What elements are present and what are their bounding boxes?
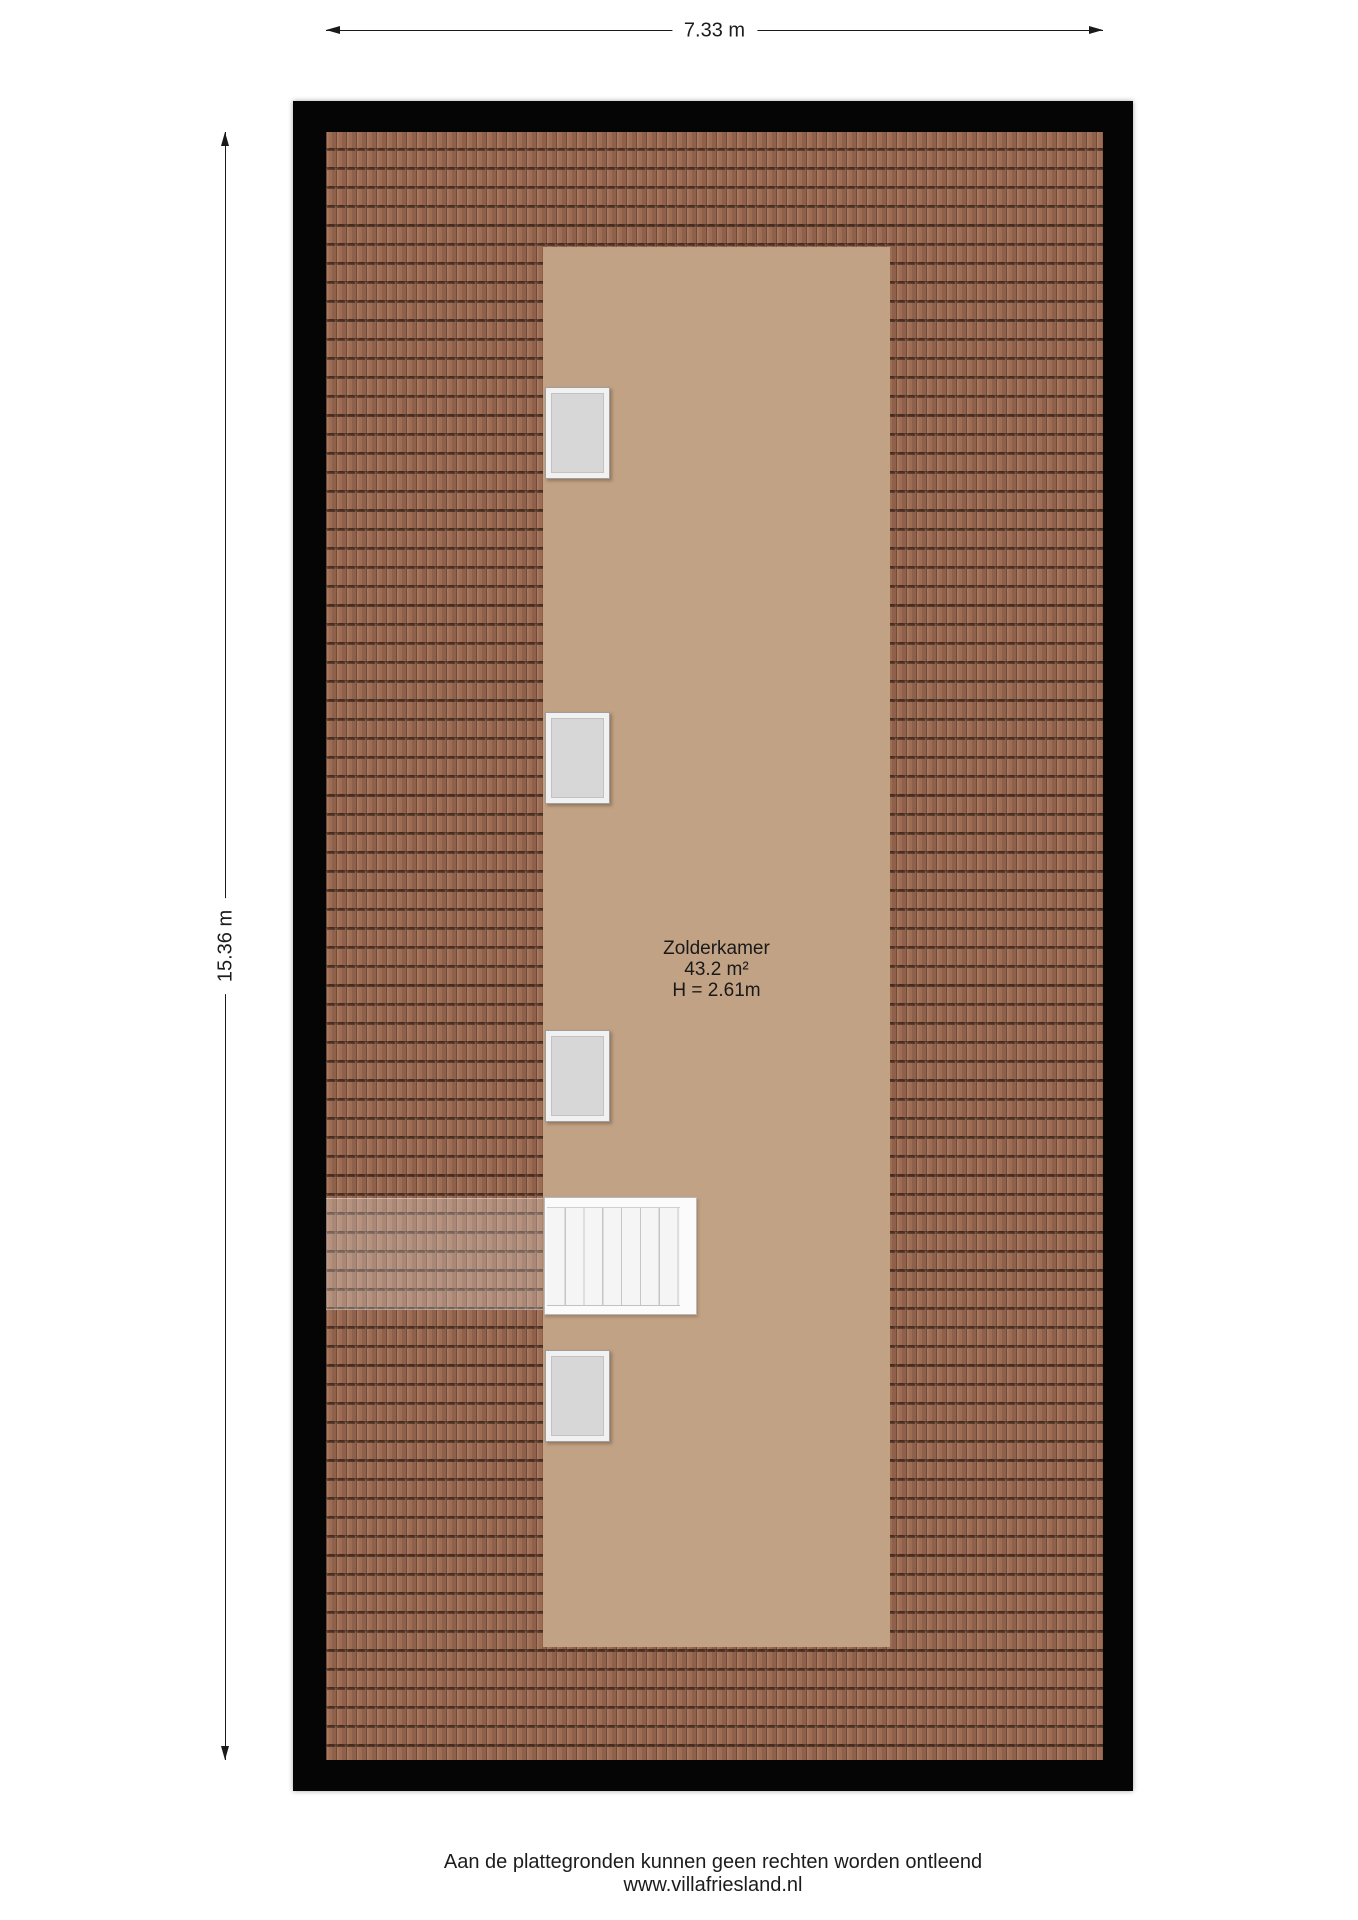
roof-lowered-band (326, 1198, 543, 1310)
skylight-window-1 (545, 387, 610, 479)
stair-treads (547, 1207, 680, 1306)
height-dimension-label: 15.36 m (213, 898, 240, 994)
height-dimension-line: 15.36 m (225, 132, 226, 1760)
width-dimension-label: 7.33 m (672, 20, 757, 43)
arrowhead-left-icon (326, 26, 340, 34)
footer-website: www.villafriesland.nl (293, 1874, 1133, 1897)
room-name: Zolderkamer (543, 938, 890, 959)
floor-plan-page: 7.33 m 15.36 m Zolderkamer 43.2 m² H = 2… (0, 0, 1358, 1920)
width-dimension-line: 7.33 m (326, 30, 1103, 31)
arrowhead-down-icon (221, 1746, 229, 1760)
footer-disclaimer: Aan de plattegronden kunnen geen rechten… (293, 1851, 1133, 1874)
room-ceiling-height: H = 2.61m (543, 980, 890, 1001)
skylight-window-4 (545, 1350, 610, 1442)
staircase (544, 1197, 697, 1315)
roof-tile-area: Zolderkamer 43.2 m² H = 2.61m (326, 132, 1103, 1760)
room-label: Zolderkamer 43.2 m² H = 2.61m (543, 938, 890, 1001)
footer: Aan de plattegronden kunnen geen rechten… (293, 1851, 1133, 1897)
outer-wall: Zolderkamer 43.2 m² H = 2.61m (293, 101, 1133, 1791)
room-area: 43.2 m² (543, 959, 890, 980)
arrowhead-right-icon (1089, 26, 1103, 34)
arrowhead-up-icon (221, 132, 229, 146)
skylight-window-3 (545, 1030, 610, 1122)
skylight-window-2 (545, 712, 610, 804)
